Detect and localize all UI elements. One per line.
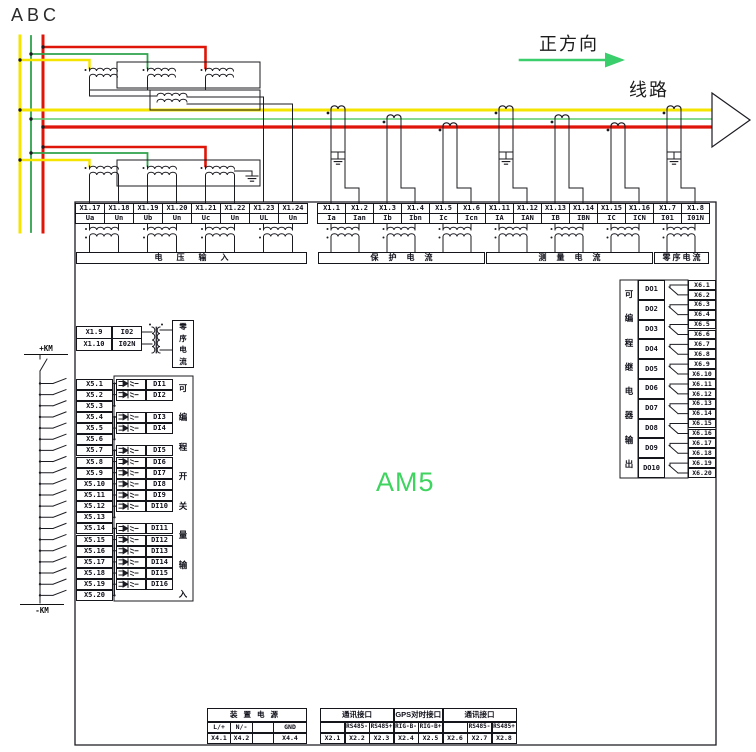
do-terminal-cell: X6.3 [688,300,716,310]
vertical-label-char: 程 [625,337,634,349]
terminal-number-cell: X1.10 [76,338,112,351]
power-table-signal-cell: L/+ [207,722,231,734]
di-label-cell: DI16 [146,579,173,590]
terminal-signal-cell: Un [104,213,134,224]
positive-direction-label: 正方向 [539,30,599,56]
di-terminal-cell: X5.20 [76,590,113,601]
line-label: 线路 [629,76,669,102]
di-label-cell: DI14 [146,557,173,568]
do-label-cell: DO4 [638,339,665,359]
do-label-cell: DO7 [638,399,665,419]
di-terminal-cell: X5.8 [76,457,113,468]
power-table-signal-cell: N/- [230,722,253,734]
comm-table-terminal-cell: X2.2 [345,733,370,744]
terminal-signal-cell: Ibn [401,213,430,224]
phase-letter: A [11,5,27,25]
device-name-label: AM5 [376,467,435,498]
do-label-cell: DO3 [638,320,665,340]
power-table-terminal-cell [252,733,274,744]
do-terminal-cell: X6.1 [688,280,716,290]
terminal-signal-cell: I02 [112,326,142,339]
optocoupler-box [116,523,146,534]
do-terminal-cell: X6.4 [688,310,716,320]
terminal-signal-cell: UL [249,213,279,224]
power-table-title: 装置电源 [207,708,307,722]
di-label-cell: DI6 [146,457,173,468]
comm-table-signal-cell [443,722,468,734]
vertical-label-char: 零 [179,321,187,332]
di-label-cell: DI13 [146,546,173,557]
optocoupler-box [116,479,146,490]
ct-wiring [327,106,695,203]
terminal-group-label: 测量电流 [486,252,653,264]
comm-table-signal-cell: RS485- [467,722,492,734]
do-terminal-cell: X6.12 [688,389,716,399]
terminal-signal-cell: Ua [75,213,105,224]
optocoupler-box [116,546,146,557]
vertical-label-char: 编 [179,411,188,423]
di-terminal-cell: X5.19 [76,579,113,590]
di-label-cell: DI8 [146,479,173,490]
terminal-group-label: 保护电流 [318,252,485,264]
terminal-signal-cell: Ub [133,213,163,224]
comm-table-terminal-cell: X2.1 [320,733,345,744]
do-label-cell: DO1 [638,280,665,300]
vertical-label-char: 输 [179,559,188,571]
terminal-signal-cell: IB [541,213,570,224]
optocoupler-box [116,379,146,390]
terminal-signal-cell: IC [597,213,626,224]
di-label-cell: DI4 [146,423,173,434]
vertical-label-char: 编 [625,312,634,324]
vertical-label-char: 电 [179,344,187,355]
zero-seq-aux-wiring [142,324,172,354]
comm-table-terminal-cell: X2.6 [443,733,468,744]
di-terminal-cell: X5.3 [76,401,113,412]
terminal-signal-cell: I02N [112,338,142,351]
km-minus-label: -KM [20,604,64,615]
di-block-label: 可编程开关量输入 [174,382,192,600]
do-terminal-cell: X6.9 [688,359,716,369]
power-table-terminal-cell: X4.4 [273,733,307,744]
terminal-signal-cell: I01 [653,213,682,224]
terminal-signal-cell: Un [220,213,250,224]
terminal-group-label: 零序电流 [654,252,709,264]
schematic-page: ABC 正方向 线路 AM5 +KM -KM X1.17UaX1.18UnX1.… [0,0,756,752]
comm-table-terminal-cell: X2.4 [394,733,419,744]
do-terminal-cell: X6.17 [688,438,716,448]
terminal-signal-cell: IAN [513,213,542,224]
vertical-label-char: 电 [625,385,634,397]
comm-table-signal-cell: RS485+ [369,722,394,734]
di-label-cell: DI3 [146,412,173,423]
optocoupler-box [116,423,146,434]
di-terminal-cell: X5.9 [76,468,113,479]
comm-table-terminal-cell: X2.8 [492,733,517,744]
km-plus-label: +KM [24,344,68,355]
line-arrow [712,93,750,147]
di-terminal-cell: X5.5 [76,423,113,434]
di-terminal-cell: X5.16 [76,546,113,557]
optocoupler-box [116,445,146,456]
terminal-signal-cell: Ia [317,213,346,224]
optocoupler-box [116,568,146,579]
do-label-cell: DO9 [638,438,665,458]
do-block-label: 可编程继电器输出 [621,288,637,470]
phase-labels: ABC [11,5,60,26]
terminal-transformers [85,224,695,253]
do-terminal-cell: X6.5 [688,320,716,330]
terminal-signal-cell: Un [278,213,308,224]
do-terminal-cell: X6.18 [688,448,716,458]
vertical-label-char: 出 [625,458,634,470]
zero-seq-aux-label: 零序电流 [172,320,194,368]
vertical-label-char: 量 [179,529,188,541]
di-label-cell: DI7 [146,468,173,479]
power-table-terminal-cell: X4.2 [230,733,253,744]
terminal-signal-cell: IBN [569,213,598,224]
optocoupler-box [116,468,146,479]
di-label-cell: DI1 [146,379,173,390]
comm-table-title: GPS对时接口 [394,708,444,722]
optocoupler-box [116,579,146,590]
terminal-group-label: 电压输入 [76,252,307,264]
di-label-cell: DI5 [146,445,173,456]
optocoupler-box [116,501,146,512]
do-terminal-cell: X6.14 [688,409,716,419]
do-terminal-cell: X6.16 [688,429,716,439]
do-terminal-cell: X6.7 [688,339,716,349]
di-terminal-cell: X5.4 [76,412,113,423]
do-terminal-cell: X6.19 [688,458,716,468]
di-label-cell: DI10 [146,501,173,512]
comm-table-signal-cell: RIG-B+ [418,722,443,734]
optocoupler-box [116,390,146,401]
comm-table-terminal-cell: X2.5 [418,733,443,744]
di-label-cell: DI12 [146,535,173,546]
terminal-signal-cell: Un [162,213,192,224]
vertical-label-char: 输 [625,434,634,446]
vertical-label-char: 可 [179,382,188,394]
pt-wiring [85,62,293,203]
do-terminal-cell: X6.11 [688,379,716,389]
di-terminal-cell: X5.17 [76,557,113,568]
comm-table-terminal-cell: X2.7 [467,733,492,744]
di-terminal-cell: X5.11 [76,490,113,501]
vertical-label-char: 开 [179,470,188,482]
comm-table-signal-cell: RIG-B- [394,722,419,734]
terminal-signal-cell: I01N [681,213,710,224]
do-terminal-cell: X6.10 [688,369,716,379]
do-label-cell: DO8 [638,419,665,439]
optocoupler-box [116,535,146,546]
vertical-label-char: 流 [179,356,187,367]
vertical-label-char: 可 [625,288,634,300]
di-terminal-cell: X5.10 [76,479,113,490]
comm-table-signal-cell: RS485+ [492,722,517,734]
do-terminal-cell: X6.13 [688,399,716,409]
optocoupler-box [116,412,146,423]
terminal-signal-cell: Icn [457,213,486,224]
phase-letter: B [27,5,43,25]
power-table-signal-cell [252,722,274,734]
terminal-signal-cell: Ic [429,213,458,224]
vertical-label-char: 入 [179,588,188,600]
do-terminal-cell: X6.20 [688,468,716,478]
di-terminal-cell: X5.6 [76,434,113,445]
terminal-number-cell: X1.9 [76,326,112,339]
terminal-signal-cell: Ian [345,213,374,224]
optocoupler-box [116,457,146,468]
comm-table-signal-cell: RS485- [345,722,370,734]
comm-table-title: 通讯接口 [443,708,517,722]
vertical-label-char: 关 [179,500,188,512]
do-terminal-cell: X6.8 [688,349,716,359]
do-label-cell: DO2 [638,300,665,320]
optocoupler-box [116,490,146,501]
do-terminal-cell: X6.2 [688,290,716,300]
terminal-signal-cell: Uc [191,213,221,224]
di-terminal-cell: X5.1 [76,379,113,390]
terminal-signal-cell: ICN [625,213,654,224]
di-terminal-cell: X5.12 [76,501,113,512]
comm-table-signal-cell [320,722,345,734]
do-terminal-cell: X6.15 [688,419,716,429]
di-terminal-cell: X5.7 [76,445,113,456]
di-terminal-cell: X5.13 [76,512,113,523]
di-terminal-cell: X5.14 [76,523,113,534]
do-label-cell: DO5 [638,359,665,379]
do-label-cell: DO6 [638,379,665,399]
optocoupler-box [116,557,146,568]
do-terminal-cell: X6.6 [688,330,716,340]
comm-table-title: 通讯接口 [320,708,394,722]
do-label-cell: DO10 [638,458,665,478]
terminal-signal-cell: Ib [373,213,402,224]
di-terminal-cell: X5.18 [76,568,113,579]
comm-table-terminal-cell: X2.3 [369,733,394,744]
phase-letter: C [43,5,60,25]
di-terminal-cell: X5.15 [76,535,113,546]
di-label-cell: DI9 [146,490,173,501]
di-label-cell: DI15 [146,568,173,579]
vertical-label-char: 继 [625,361,634,373]
vertical-label-char: 程 [179,441,188,453]
di-terminal-cell: X5.2 [76,390,113,401]
power-table-signal-cell: GND [273,722,307,734]
power-table-terminal-cell: X4.1 [207,733,231,744]
vertical-label-char: 器 [625,409,634,421]
terminal-signal-cell: IA [485,213,514,224]
di-label-cell: DI11 [146,523,173,534]
vertical-label-char: 序 [179,333,187,344]
di-label-cell: DI2 [146,390,173,401]
